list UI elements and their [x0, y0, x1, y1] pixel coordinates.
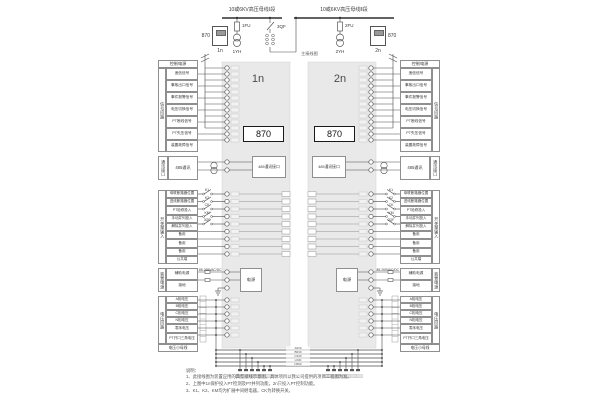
right-power-row: 接地 — [400, 280, 432, 292]
left-signal-row: PT断线信号 — [166, 116, 198, 128]
device2-model-box: 870 — [314, 126, 355, 142]
left-di-strip: 开关量输入 — [158, 190, 166, 264]
note-item: 2、上图中1n保护投入PT检测及PT并列功能，2n只投入PT控制功能。 — [186, 381, 436, 388]
device2-front — [370, 26, 386, 46]
pt1-label: 1YH — [228, 49, 246, 54]
left-contact-label: CK — [199, 203, 215, 208]
left-contact-label: 3QF — [199, 218, 215, 223]
right-di-row: PT检修投入 — [400, 206, 432, 214]
left-voltage-bus-box: 电压小母线 — [158, 344, 198, 352]
right-contact-label: 3QF — [383, 218, 399, 223]
left-voltage-row: N相电压 — [166, 317, 198, 324]
wiring-lines-layer — [0, 0, 600, 400]
right-voltage-row: C相电压 — [400, 310, 432, 317]
right-voltage-row: N相电压 — [400, 317, 432, 324]
left-power-range-label: 85-265VAC/DC — [199, 268, 233, 274]
left-psu-box: 电源 — [240, 268, 262, 292]
bus2-label: 10或6KV高压母线Ⅱ段 — [304, 6, 384, 13]
left-contact-label: K2 — [199, 195, 215, 200]
left-di-row: 备用 — [166, 248, 198, 256]
right-signal-row: 事件报警信号 — [400, 92, 432, 104]
right-di-row: 备用 — [400, 239, 432, 247]
left-comm-strip: 通讯接口 — [158, 156, 168, 180]
left-signal-row: PT失压信号 — [166, 128, 198, 140]
right-signal-header: 控制电源 — [400, 60, 440, 68]
device2-label: 870 — [388, 33, 404, 39]
right-voltage-row: PT开口三角电压 — [400, 333, 432, 344]
right-voltage-row: B相电压 — [400, 303, 432, 310]
device1-front — [212, 26, 228, 46]
right-contact-label: CK — [383, 203, 399, 208]
left-voltage-strip: 电压回路 — [158, 296, 166, 344]
fuse1-label: 1FU — [242, 23, 251, 28]
right-voltage-bus-box: 电压小母线 — [400, 344, 440, 352]
panel2-title: 2n — [321, 72, 359, 86]
left-power-row: 辅助电源 — [166, 268, 198, 280]
left-signal-row: 装置故障信号 — [166, 140, 198, 152]
left-voltage-row: PT开口三角电压 — [166, 333, 198, 344]
right-signal-row: 事故出口信号 — [400, 80, 432, 92]
right-voltage-row: 零序电压 — [400, 324, 432, 333]
right-di-row: 手动并列投入 — [400, 215, 432, 223]
left-power-row: 接地 — [166, 280, 198, 292]
right-comm-box: 485通讯 — [400, 156, 430, 180]
left-contact-label: K1 — [199, 188, 215, 193]
left-di-row: 母联断路器位置 — [166, 190, 198, 198]
right-voltage-row: A相电压 — [400, 296, 432, 303]
left-voltage-row: C相电压 — [166, 310, 198, 317]
note-item: 3、K1、K2、KM均为扩展中间继电器，CK为转换开关。 — [186, 388, 436, 395]
right-di-strip: 开关量输入 — [432, 190, 440, 264]
left-di-row: 解除并列投入 — [166, 223, 198, 231]
right-di-row: 备用 — [400, 231, 432, 239]
left-voltage-row: 零序电压 — [166, 324, 198, 333]
left-signal-header: 控制电源 — [158, 60, 198, 68]
left-di-row: 进线断路器位置 — [166, 198, 198, 206]
left-di-row: 备用 — [166, 231, 198, 239]
pt2-label: 2YH — [331, 49, 349, 54]
right-power-row: 辅助电源 — [400, 268, 432, 280]
left-contact-label: KM — [199, 210, 215, 215]
right-contact-label: KM — [383, 210, 399, 215]
left-signal-row: 事件报警信号 — [166, 92, 198, 104]
left-comm-box: 485通讯 — [168, 156, 198, 180]
right-di-row: 解除并列投入 — [400, 223, 432, 231]
device1-screen — [216, 30, 226, 36]
right-signal-strip: 信号回路 — [432, 68, 440, 152]
right-comm-strip: 通讯接口 — [430, 156, 440, 180]
right-contact-label: K2 — [383, 195, 399, 200]
left-comm-plugin-box: 485通讯接口 — [252, 156, 286, 178]
wiring-diagram-canvas: 10或6KV高压母线Ⅰ段 10或6KV高压母线Ⅱ段 1FU 3QF 2FU 1Y… — [0, 0, 600, 400]
main-wiring-label: 主接线图 — [301, 51, 318, 57]
right-psu-box: 电源 — [336, 268, 358, 292]
left-signal-row: 事故出口信号 — [166, 80, 198, 92]
right-signal-row: PT断线信号 — [400, 116, 432, 128]
device2-screen — [374, 30, 384, 36]
right-signal-row: PT失压信号 — [400, 128, 432, 140]
right-di-row: 进线断路器位置 — [400, 198, 432, 206]
device2-sub: 2n — [370, 48, 386, 53]
left-signal-row: 遥信信号 — [166, 68, 198, 80]
left-signal-strip: 信号回路 — [158, 68, 166, 152]
right-signal-row: 装置故障信号 — [400, 140, 432, 152]
right-di-row: 公共端 — [400, 256, 432, 264]
left-signal-row: 电压切换信号 — [166, 104, 198, 116]
right-power-range-label: 85-265VAC/DC — [365, 268, 399, 274]
right-voltage-strip: 电压回路 — [432, 296, 440, 344]
device1-sub: 1n — [212, 48, 228, 53]
bus-wire-label: N600 — [286, 362, 310, 366]
device1-model-box: 870 — [243, 126, 284, 142]
right-power-strip: 装置电源 — [432, 268, 440, 292]
right-di-row: 母联断路器位置 — [400, 190, 432, 198]
left-voltage-row: A相电压 — [166, 296, 198, 303]
notes-block: 说明： 1、此接线图为装置应用的典型接线示意图，具体项目以我公司提供的项目工程图… — [186, 368, 436, 394]
device1-label: 870 — [194, 33, 210, 39]
breaker-label: 3QF — [277, 24, 286, 29]
right-di-row: 备用 — [400, 248, 432, 256]
right-signal-row: 电压切换信号 — [400, 104, 432, 116]
right-comm-plugin-box: 485通讯接口 — [312, 156, 346, 178]
bus1-label: 10或6KV高压母线Ⅰ段 — [212, 6, 292, 13]
left-di-row: 公共端 — [166, 256, 198, 264]
left-di-row: 备用 — [166, 239, 198, 247]
right-contact-label: K1 — [383, 188, 399, 193]
left-di-row: PT检修投入 — [166, 206, 198, 214]
notes-items: 1、此接线图为装置应用的典型接线示意图，具体项目以我公司提供的项目工程图为准。2… — [186, 374, 436, 394]
left-power-strip: 装置电源 — [158, 268, 166, 292]
left-di-row: 手动并列投入 — [166, 215, 198, 223]
fuse2-label: 2FU — [345, 23, 354, 28]
panel1-title: 1n — [239, 72, 277, 86]
right-signal-row: 遥信信号 — [400, 68, 432, 80]
left-voltage-row: B相电压 — [166, 303, 198, 310]
